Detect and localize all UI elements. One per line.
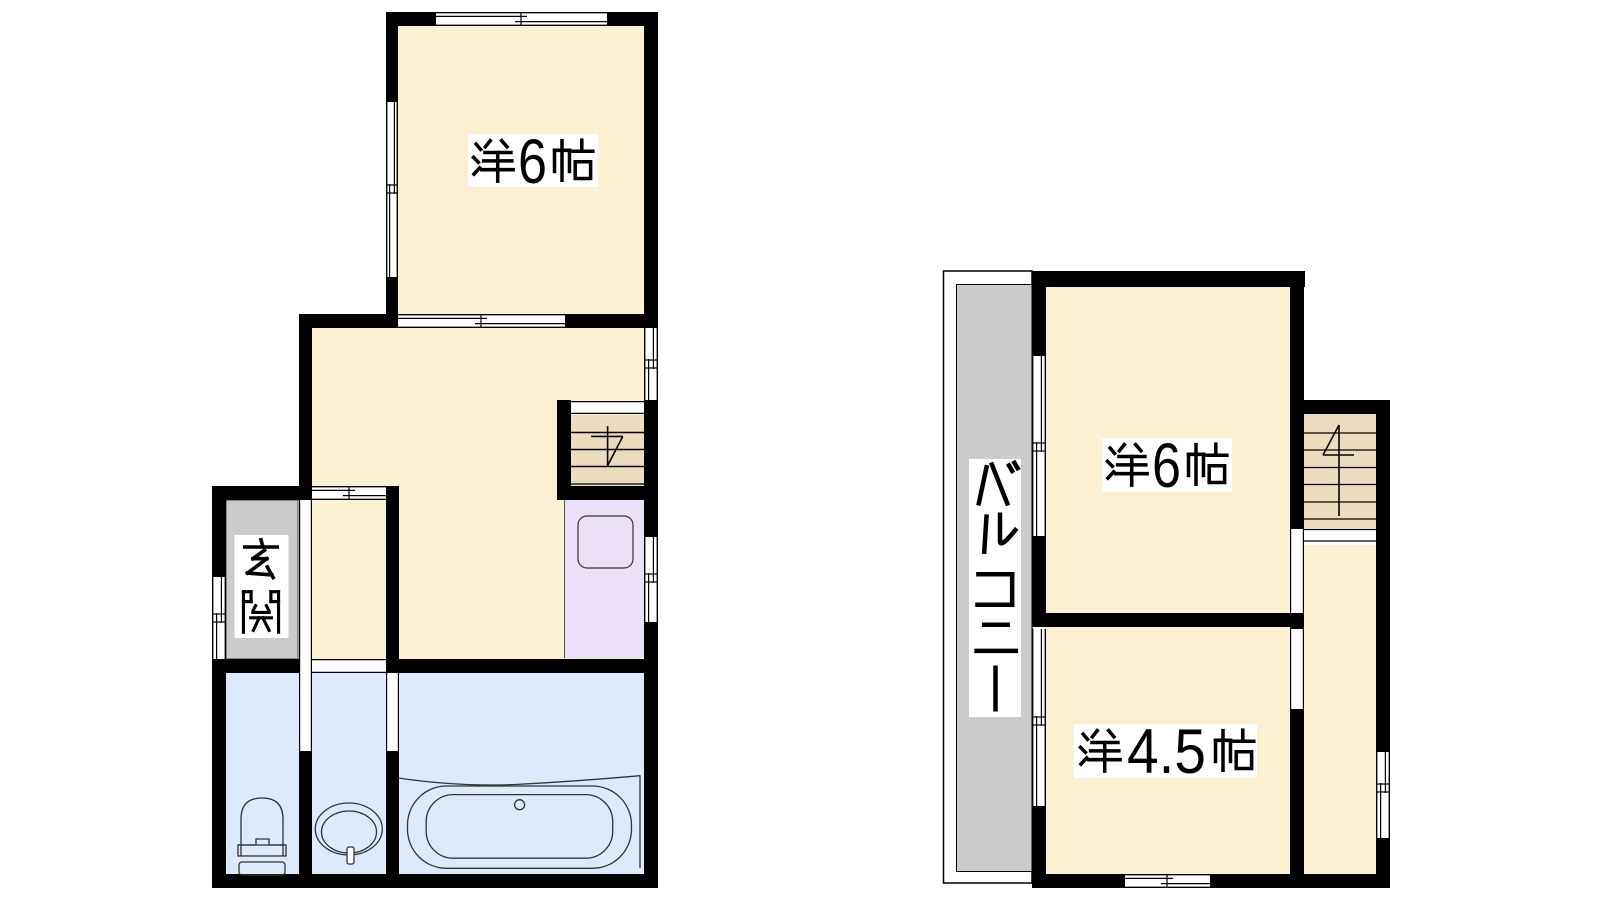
svg-text:6: 6: [518, 127, 547, 197]
svg-text:4.5: 4.5: [1127, 717, 1206, 787]
svg-text:6: 6: [1152, 431, 1181, 501]
